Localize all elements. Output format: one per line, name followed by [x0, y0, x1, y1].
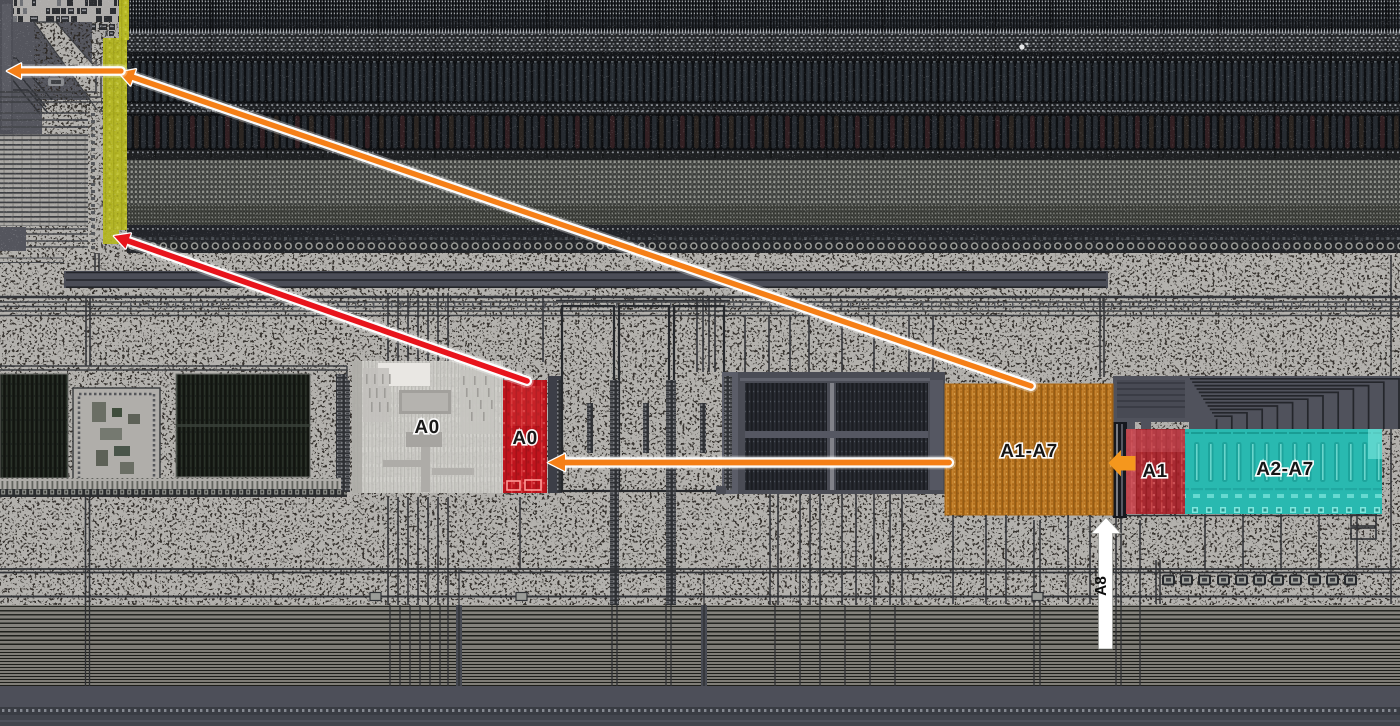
svg-text:A1-A7: A1-A7 — [1000, 441, 1057, 462]
svg-text:A0: A0 — [414, 417, 439, 438]
svg-text:A1: A1 — [1142, 461, 1167, 482]
svg-text:A0: A0 — [512, 428, 537, 449]
svg-text:A2-A7: A2-A7 — [1256, 459, 1313, 480]
svg-text:A8: A8 — [1093, 576, 1110, 596]
